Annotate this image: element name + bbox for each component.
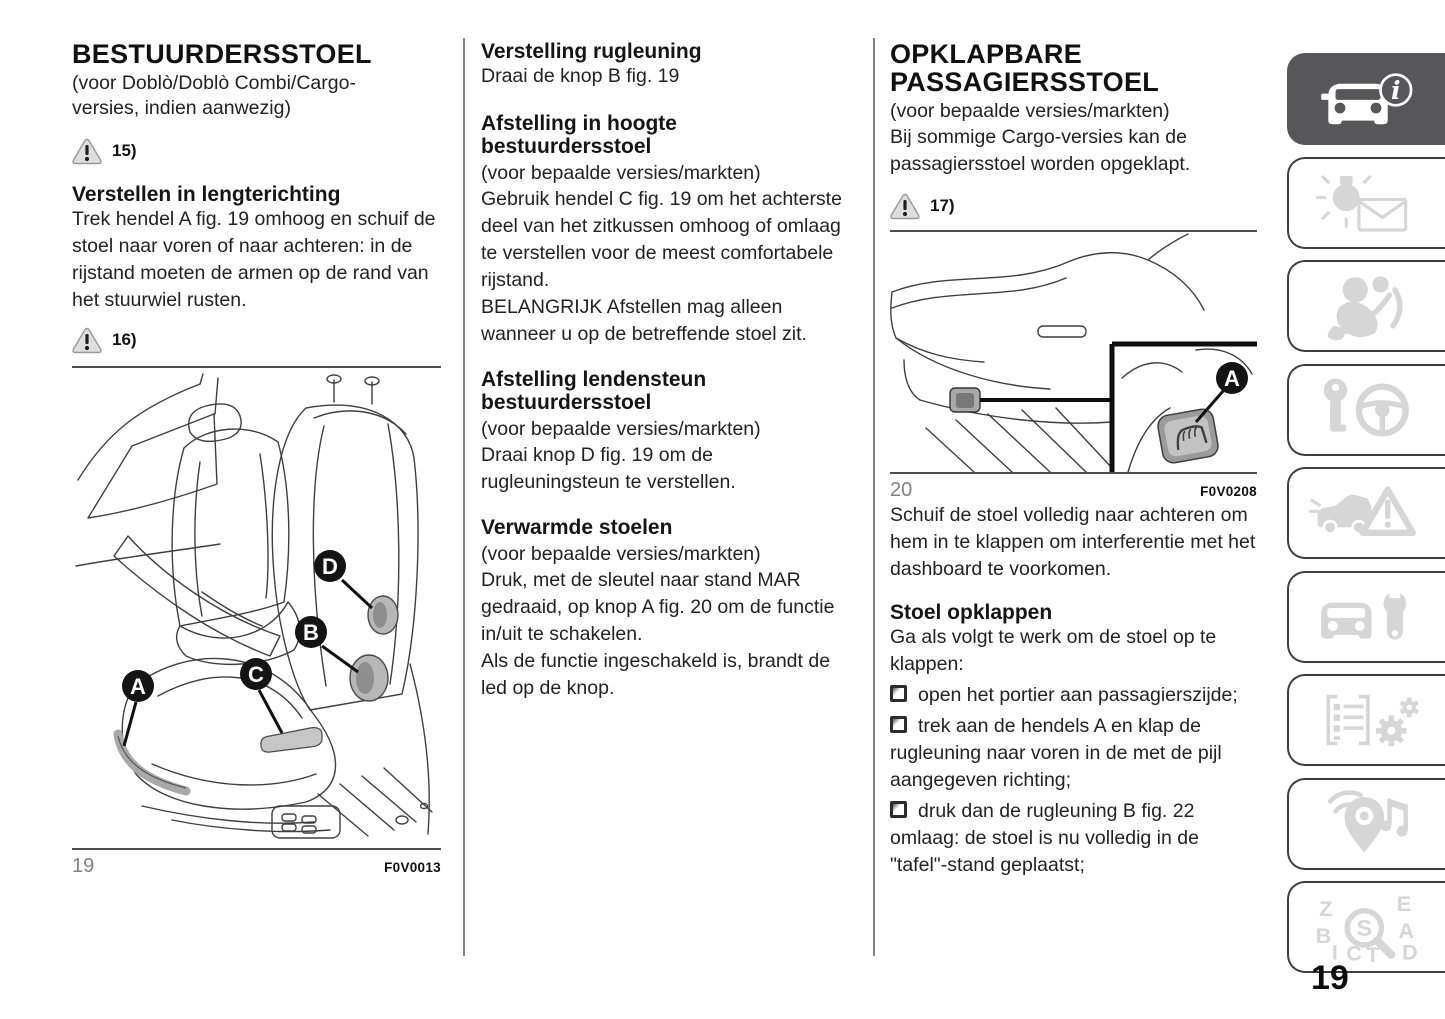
dashboard-lights-messages-icon — [1308, 167, 1426, 239]
subsection-note: (voor bepaalde versies/markten) — [481, 161, 857, 186]
svg-text:C: C — [248, 662, 264, 687]
sidebar-tab-technical-data[interactable] — [1287, 674, 1445, 766]
svg-text:Z: Z — [1319, 896, 1332, 921]
svg-text:D: D — [322, 554, 338, 579]
slide-handle-a — [118, 734, 186, 791]
figure-number: 20 — [890, 479, 912, 502]
subsection-title: Afstelling lendensteun bestuurdersstoel — [481, 368, 857, 414]
list-item-text: trek aan de hendels A en klap de rugleun… — [890, 715, 1222, 791]
sidebar-tab-maintenance[interactable] — [1287, 571, 1445, 663]
figure-code: F0V0208 — [1200, 484, 1257, 499]
figure-code: F0V0013 — [384, 860, 441, 875]
svg-text:i: i — [1391, 75, 1401, 105]
sidebar-tab-emergency[interactable] — [1287, 467, 1445, 559]
heated-seat-button-zoomed — [1156, 408, 1219, 465]
subsection-title: Stoel opklappen — [890, 601, 1257, 624]
svg-text:A: A — [130, 674, 146, 699]
svg-text:B: B — [303, 620, 319, 645]
svg-text:A: A — [1224, 366, 1240, 391]
sidebar-tab-starting-driving[interactable] — [1287, 364, 1445, 456]
subsection-note: (voor bepaalde versies/markten) — [481, 542, 857, 567]
svg-text:E: E — [1397, 891, 1411, 916]
warning-ref-15: 15) — [72, 137, 441, 165]
title-note: (voor Doblò/Doblò Combi/Cargo- versies, … — [72, 71, 441, 121]
checkbox-bullet-icon — [890, 716, 907, 733]
multimedia-icon — [1308, 788, 1426, 860]
body-paragraph: Bij sommige Cargo-versies kan de passagi… — [890, 124, 1257, 178]
warning-triangle-icon — [72, 327, 102, 354]
svg-text:D: D — [1402, 939, 1418, 963]
sidebar-tab-multimedia[interactable] — [1287, 778, 1445, 870]
title-note: (voor bepaalde versies/markten) — [890, 99, 1257, 124]
body-paragraph: Schuif de stoel volledig naar achteren o… — [890, 502, 1257, 583]
callout-a: A — [122, 670, 154, 702]
warning-number: 16) — [112, 330, 137, 350]
page-title-driver-seat: BESTUURDERSSTOEL — [72, 40, 441, 68]
middle-column: Verstelling rugleuning Draai de knop B f… — [481, 40, 857, 702]
maintenance-icon — [1308, 581, 1426, 653]
sidebar-tab-safety[interactable] — [1287, 260, 1445, 352]
subsection-title: Afstelling in hoogte bestuurdersstoel — [481, 112, 857, 158]
warning-triangle-icon — [890, 193, 920, 220]
warning-number: 15) — [112, 141, 137, 161]
index-icon: ZE BA IC TD S — [1308, 891, 1426, 963]
svg-text:B: B — [1316, 923, 1332, 948]
subsection-note: (voor bepaalde versies/markten) — [481, 417, 857, 442]
body-paragraph: Trek hendel A fig. 19 omhoog en schuif d… — [72, 206, 441, 314]
sidebar-tab-vehicle-info[interactable]: i — [1287, 53, 1445, 145]
body-paragraph: Ga als volgt te werk om de stoel op te k… — [890, 624, 1257, 678]
body-paragraph: Druk, met de sleutel naar stand MAR gedr… — [481, 567, 857, 702]
callout-d: D — [314, 550, 346, 582]
figure-19-caption: 19 F0V0013 — [72, 855, 441, 878]
column-divider — [463, 38, 465, 956]
checkbox-bullet-icon — [890, 801, 907, 818]
list-item: druk dan de rugleuning B fig. 22 omlaag:… — [890, 798, 1257, 879]
subsection-title: Verstelling rugleuning — [481, 40, 857, 63]
warning-triangle-icon — [72, 138, 102, 165]
figure-19-seat-adjustment: A C B D — [72, 366, 441, 850]
callout-a: A — [1216, 362, 1248, 394]
emergency-icon — [1308, 477, 1426, 549]
vehicle-info-icon: i — [1308, 63, 1426, 135]
body-paragraph: Draai knop D fig. 19 om de rugleuningste… — [481, 442, 857, 496]
callout-b: B — [295, 616, 327, 648]
subsection-title: Verwarmde stoelen — [481, 516, 857, 539]
checkbox-bullet-icon — [890, 685, 907, 702]
seat-adjustment-illustration: A C B D — [72, 368, 441, 848]
callout-c: C — [240, 658, 272, 690]
list-item: trek aan de hendels A en klap de rugleun… — [890, 713, 1257, 794]
left-column: BESTUURDERSSTOEL (voor Doblò/Doblò Combi… — [72, 40, 441, 878]
safety-icon — [1308, 270, 1426, 342]
page-title-folding-seat: OPKLAPBARE PASSAGIERSSTOEL — [890, 40, 1257, 96]
body-paragraph: Gebruik hendel C fig. 19 om het achterst… — [481, 186, 857, 294]
important-paragraph: BELANGRIJK Afstellen mag alleen wanneer … — [481, 294, 857, 348]
figure-20-heated-seat-button: A — [890, 230, 1257, 474]
warning-ref-17: 17) — [890, 192, 1257, 220]
height-lever-c — [261, 728, 322, 752]
figure-number: 19 — [72, 855, 94, 878]
figure-20-caption: 20 F0V0208 — [890, 479, 1257, 502]
page-number: 19 — [1311, 958, 1349, 998]
starting-driving-icon — [1308, 374, 1426, 446]
list-item-text: open het portier aan passagierszijde; — [918, 684, 1238, 706]
warning-number: 17) — [930, 196, 955, 216]
heated-seat-button-illustration: A — [890, 232, 1257, 472]
list-item: open het portier aan passagierszijde; — [890, 682, 1257, 709]
right-column: OPKLAPBARE PASSAGIERSSTOEL (voor bepaald… — [890, 40, 1257, 879]
svg-text:S: S — [1356, 915, 1372, 941]
body-paragraph: Draai de knop B fig. 19 — [481, 63, 857, 90]
sidebar-tab-dashboard-lights-messages[interactable] — [1287, 157, 1445, 249]
warning-ref-16: 16) — [72, 326, 441, 354]
technical-data-icon — [1308, 684, 1426, 756]
column-divider — [873, 38, 875, 956]
list-item-text: druk dan de rugleuning B fig. 22 omlaag:… — [890, 800, 1199, 876]
subsection-title: Verstellen in lengterichting — [72, 183, 441, 206]
